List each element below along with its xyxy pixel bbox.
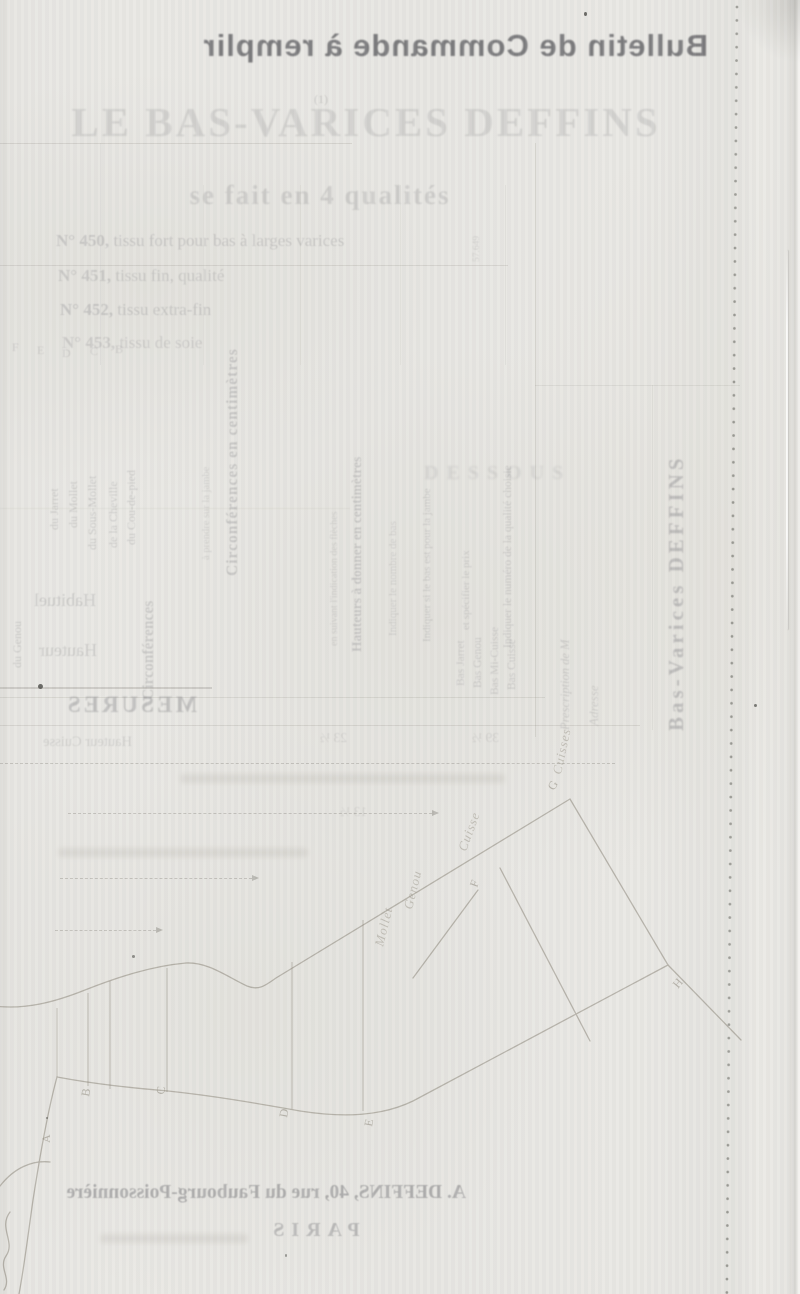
mesures-value: 39 ½ bbox=[472, 730, 499, 746]
field-prescription: Prescription de M bbox=[558, 640, 573, 731]
diagram-letter-f: F bbox=[467, 878, 483, 889]
legend-letter: F bbox=[12, 340, 19, 355]
section-dessous: DESSOUS bbox=[424, 462, 571, 485]
instruction-price: et spécifier le prix bbox=[460, 550, 472, 630]
brand-vertical-title: Bas-Varices DEFFINS bbox=[664, 455, 689, 731]
leg-bottom-contour bbox=[57, 965, 668, 1115]
stocking-type: Bas Jarret bbox=[455, 640, 467, 686]
ink-speck bbox=[38, 684, 43, 689]
leg-part: du Sous-Mollet bbox=[85, 476, 100, 550]
leg-part: de la Cheville bbox=[106, 481, 121, 548]
diagram-letter-e: E bbox=[361, 1118, 376, 1128]
handwritten-label-mollet: Mollet bbox=[371, 905, 395, 948]
ink-speck bbox=[132, 955, 135, 958]
quality-number: N° 452, bbox=[60, 300, 113, 319]
leg-part: du Mollet bbox=[66, 481, 81, 528]
ink-speck bbox=[754, 704, 757, 707]
instruction-count: Indiquer le nombre de bas bbox=[387, 521, 399, 636]
handwritten-label-genou: Genou bbox=[400, 869, 424, 911]
leg-part: du Jarret bbox=[47, 488, 62, 530]
field-adresse: Adresse bbox=[586, 685, 602, 726]
mesures-row-label: Hauteur Cuisse bbox=[43, 734, 132, 751]
diagram-letter-b: B bbox=[78, 1087, 93, 1097]
legend-letter: C bbox=[90, 344, 98, 359]
diagram-letter-h: H bbox=[670, 975, 687, 991]
perforation-dotted-line bbox=[723, 0, 741, 1294]
field-habituel: Habituel bbox=[34, 590, 96, 611]
quality-number: N° 451, bbox=[58, 266, 111, 285]
diagram-letter-d: D bbox=[276, 1107, 291, 1118]
legend-letter: B bbox=[115, 342, 123, 357]
stocking-type: Bas Mi-Cuisse bbox=[489, 627, 501, 695]
footer-city-mirrored: PARIS bbox=[246, 1219, 380, 1242]
instruction-heights: Hauteurs à donner en centimètres bbox=[349, 457, 365, 652]
corner-squiggle bbox=[3, 1212, 10, 1290]
quality-line: N° 453, tissu de soie bbox=[62, 333, 202, 353]
diagram-letter-g: G bbox=[544, 778, 561, 793]
product-title: LE BAS-VARICES DEFFINS bbox=[22, 98, 710, 146]
handwritten-label-cuisses: Cuisses bbox=[549, 727, 573, 776]
order-form-title-mirrored: Bulletin de Commande à remplir bbox=[0, 28, 708, 64]
legend-letter: D bbox=[62, 346, 71, 361]
ink-speck bbox=[584, 12, 587, 16]
quality-desc: tissu fin, qualité bbox=[115, 266, 224, 285]
leg-part: du Cou-de-pied bbox=[124, 470, 139, 545]
legend-letter: E bbox=[37, 343, 44, 358]
quality-desc: tissu extra-fin bbox=[117, 300, 211, 319]
ink-speck bbox=[46, 1117, 48, 1119]
quality-desc: tissu de soie bbox=[119, 333, 202, 352]
quality-number: N° 450, bbox=[56, 231, 109, 250]
quality-line: N° 452, tissu extra-fin bbox=[60, 300, 211, 320]
footnote-mark: (1) bbox=[314, 92, 328, 107]
diagram-letter-c: C bbox=[153, 1085, 168, 1095]
diagram-letter-a: A bbox=[39, 1134, 53, 1143]
mesures-value: 13 ½ bbox=[340, 804, 367, 820]
print-ref-number: 57.649 bbox=[472, 236, 482, 262]
thigh-diagonal-line bbox=[500, 868, 590, 1041]
quality-desc: tissu fort pour bas à larges varices bbox=[113, 231, 344, 250]
field-hauteur: Hauteur bbox=[39, 640, 97, 661]
section-circumferences: Circonférences en centimètres bbox=[224, 348, 242, 576]
ankle-front-contour bbox=[19, 1077, 57, 1294]
heel-arc bbox=[0, 1162, 50, 1186]
mesures-title: MESURES bbox=[44, 692, 218, 718]
qualities-heading: se fait en 4 qualités bbox=[108, 180, 532, 211]
instruction-leg: Indiquer si le bas est pour la jambe bbox=[421, 488, 433, 642]
instruction-quality: Indiquer le numéro de la qualité choisie bbox=[502, 465, 514, 648]
stocking-type: Bas Genou bbox=[472, 637, 484, 688]
mesures-value: 23 ½ bbox=[320, 730, 347, 746]
ink-speck bbox=[285, 1254, 287, 1257]
thigh-end-line bbox=[570, 799, 668, 965]
instruction-arrows: en suivant l'indication des flèches bbox=[329, 511, 340, 646]
quality-line: N° 451, tissu fin, qualité bbox=[58, 266, 224, 286]
leg-part: du Genou bbox=[10, 621, 25, 668]
circumference-note: à prendre sur la jambe bbox=[201, 467, 212, 560]
paper-fold-crease bbox=[786, 250, 788, 630]
footer-address-mirrored: A. DEFFINS, 40, rue du Faubourg-Poissonn… bbox=[100, 1182, 466, 1204]
stocking-type: Bas Cuisse bbox=[506, 639, 518, 690]
section-circumferences-2: Circonférences bbox=[140, 601, 158, 700]
scanned-order-form-back: Bulletin de Commande à remplir LE BAS-VA… bbox=[0, 0, 800, 1294]
leg-top-contour bbox=[0, 799, 570, 1007]
thigh-cross-line bbox=[413, 890, 478, 978]
handwritten-label-cuisse: Cuisse bbox=[455, 810, 483, 853]
